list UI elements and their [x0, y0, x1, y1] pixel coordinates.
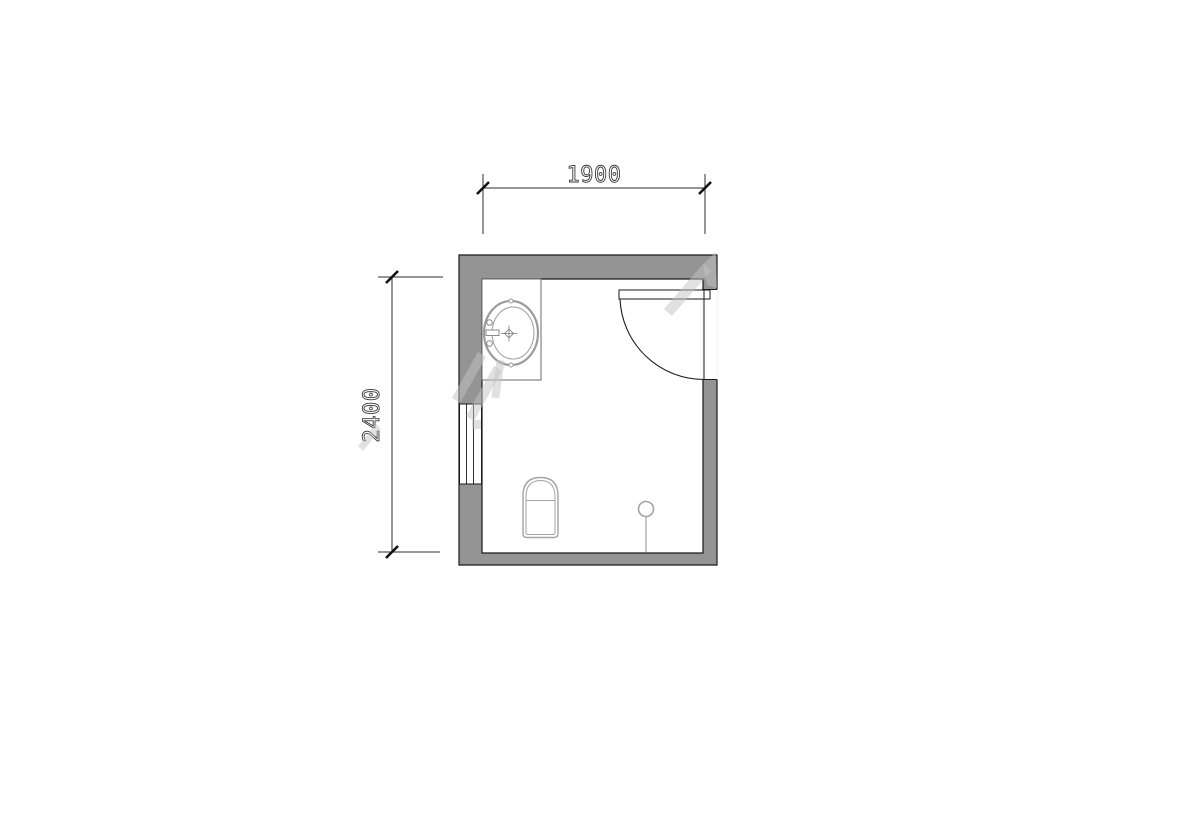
squat-toilet: [523, 478, 558, 538]
sink-vanity: [482, 279, 541, 380]
door-opening-gap: [702, 290, 718, 380]
floor-plan-drawing: 1900 2400: [0, 0, 1198, 831]
basin-notch-top: [509, 299, 513, 303]
door-opening: [702, 290, 718, 380]
floor-drain-circle: [639, 502, 654, 517]
watermark-dot: [472, 420, 481, 429]
door-swing-arc: [620, 299, 704, 380]
dimension-width-label: 1900: [567, 163, 622, 188]
floor-drain: [639, 502, 654, 553]
faucet-handle-bottom: [487, 341, 493, 347]
basin-notch-bottom: [509, 363, 513, 367]
door: [619, 290, 710, 380]
door-leaf: [619, 290, 710, 299]
floor-plan-canvas: 1900 2400: [0, 0, 1198, 831]
faucet-handle-top: [487, 320, 493, 326]
dimension-width: 1900: [477, 163, 711, 234]
dimension-height: 2400: [360, 271, 443, 558]
faucet-spout: [486, 330, 499, 336]
